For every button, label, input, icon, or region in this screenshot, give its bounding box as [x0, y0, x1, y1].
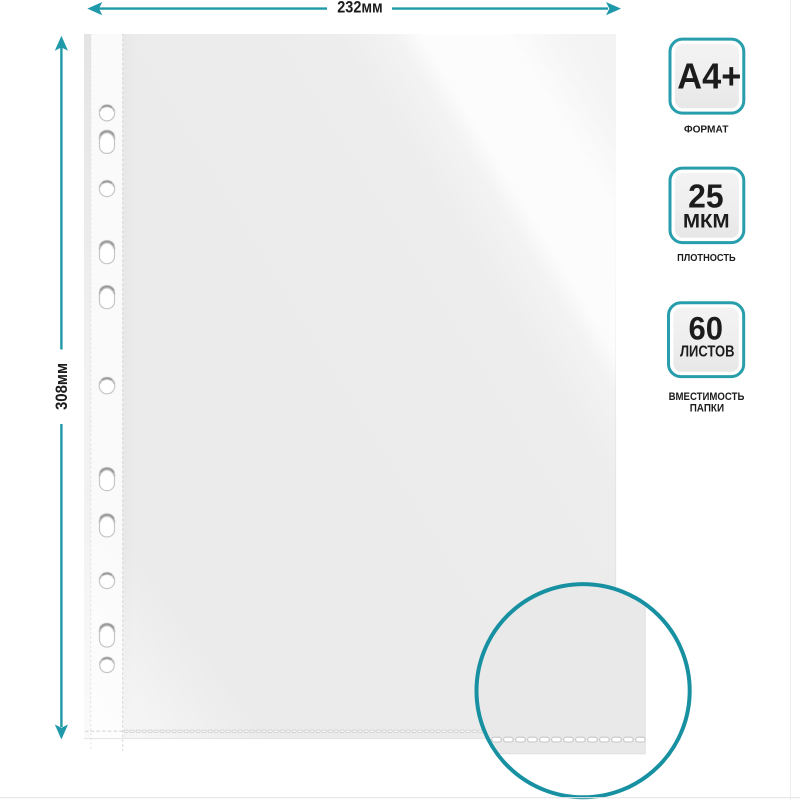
svg-text:60: 60 — [688, 311, 723, 347]
svg-text:ПЛОТНОСТЬ: ПЛОТНОСТЬ — [677, 253, 736, 264]
svg-text:ВМЕСТИМОСТЬ: ВМЕСТИМОСТЬ — [669, 391, 745, 403]
svg-text:МКМ: МКМ — [683, 210, 730, 232]
svg-text:ФОРМАТ: ФОРМАТ — [684, 125, 729, 136]
svg-text:232мм: 232мм — [337, 0, 383, 17]
svg-text:A4+: A4+ — [677, 56, 741, 97]
svg-text:ЛИСТОВ: ЛИСТОВ — [680, 344, 735, 361]
svg-text:308мм: 308мм — [53, 363, 71, 410]
svg-text:ПАПКИ: ПАПКИ — [690, 402, 725, 414]
